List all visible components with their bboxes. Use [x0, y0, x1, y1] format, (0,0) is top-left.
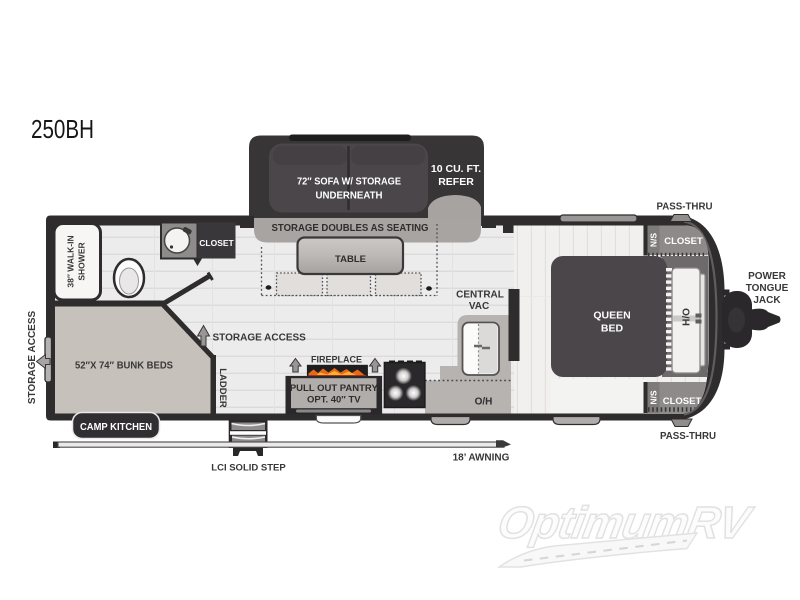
svg-text:JACK: JACK: [753, 295, 781, 306]
svg-text:OPT. 40″ TV: OPT. 40″ TV: [307, 395, 361, 406]
svg-text:CENTRAL: CENTRAL: [456, 290, 504, 301]
svg-text:PASS-THRU: PASS-THRU: [657, 202, 713, 213]
svg-text:PASS-THRU: PASS-THRU: [660, 431, 716, 442]
svg-text:PULL OUT PANTRY: PULL OUT PANTRY: [290, 383, 379, 394]
svg-text:38″ WALK-IN: 38″ WALK-IN: [66, 235, 76, 287]
svg-text:TONGUE: TONGUE: [746, 283, 789, 294]
svg-text:STORAGE DOUBLES AS SEATING: STORAGE DOUBLES AS SEATING: [272, 222, 429, 234]
svg-text:STORAGE ACCESS: STORAGE ACCESS: [213, 333, 307, 344]
svg-text:N/S: N/S: [649, 390, 659, 405]
svg-text:CLOSET: CLOSET: [663, 396, 702, 407]
svg-text:VAC: VAC: [469, 301, 489, 312]
svg-text:SHOWER: SHOWER: [77, 242, 87, 280]
svg-text:10 CU. FT.: 10 CU. FT.: [431, 163, 481, 175]
svg-text:POWER: POWER: [748, 271, 787, 282]
svg-text:H/O: H/O: [682, 308, 693, 326]
svg-text:TABLE: TABLE: [335, 254, 366, 265]
svg-text:N/S: N/S: [649, 233, 659, 248]
svg-text:UNDERNEATH: UNDERNEATH: [316, 190, 383, 202]
svg-text:CAMP KITCHEN: CAMP KITCHEN: [80, 421, 152, 433]
svg-text:O/H: O/H: [475, 397, 493, 408]
svg-text:18’ AWNING: 18’ AWNING: [453, 453, 510, 464]
svg-text:250BH: 250BH: [31, 114, 94, 144]
svg-text:CLOSET: CLOSET: [199, 238, 234, 248]
svg-text:52″X 74″ BUNK BEDS: 52″X 74″ BUNK BEDS: [75, 361, 173, 372]
svg-text:LADDER: LADDER: [217, 368, 228, 408]
svg-text:LCI SOLID STEP: LCI SOLID STEP: [211, 463, 286, 474]
svg-text:QUEEN: QUEEN: [593, 310, 630, 322]
svg-text:FIREPLACE: FIREPLACE: [311, 355, 362, 365]
svg-text:STORAGE ACCESS: STORAGE ACCESS: [27, 311, 38, 405]
svg-text:REFER: REFER: [438, 176, 474, 188]
svg-text:72″ SOFA W/ STORAGE: 72″ SOFA W/ STORAGE: [297, 176, 401, 188]
svg-text:BED: BED: [601, 323, 624, 335]
svg-text:CLOSET: CLOSET: [664, 236, 703, 247]
